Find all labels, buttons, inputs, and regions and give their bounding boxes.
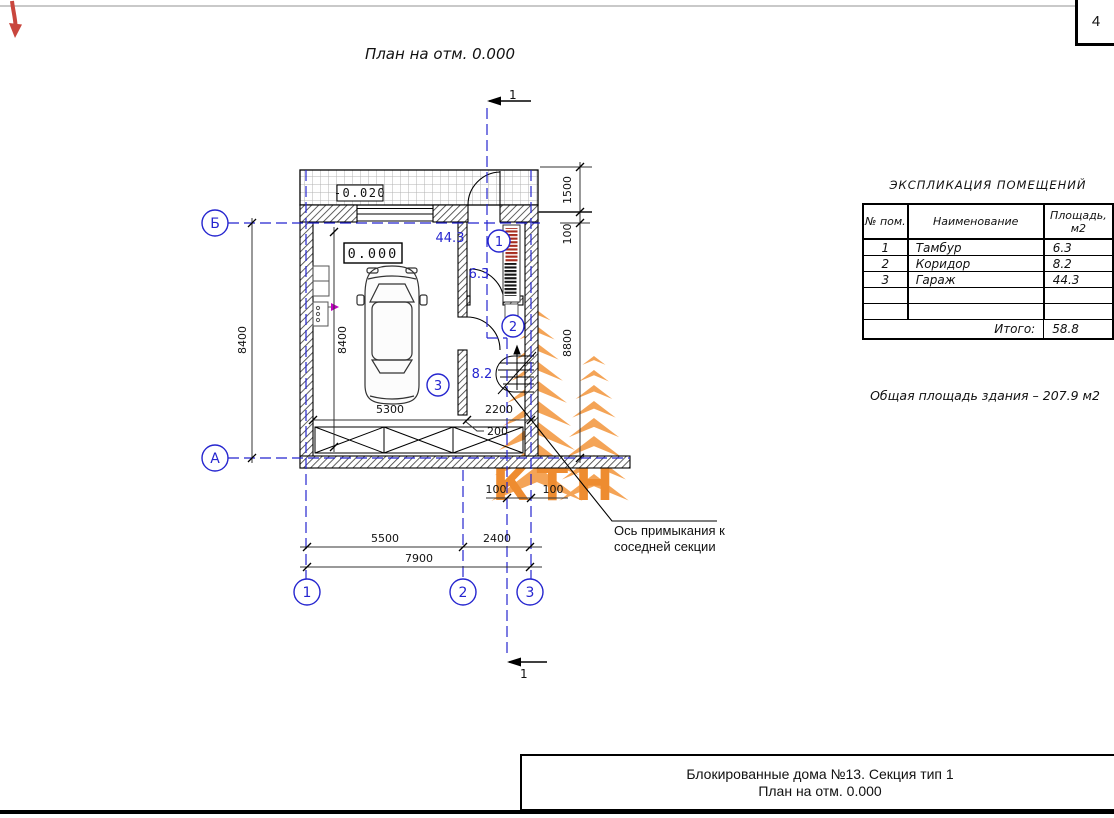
section-mark-bottom: 1	[507, 658, 547, 682]
section-label-top: 1	[509, 88, 517, 102]
explication-title: ЭКСПЛИКАЦИЯ ПОМЕЩЕНИЙ	[862, 178, 1114, 192]
dim-2200: 2200	[485, 403, 513, 416]
terrace-elevation-label: -0.020	[334, 186, 386, 200]
dim-100-right: 100	[543, 483, 564, 496]
room-tag-2: 2	[509, 320, 517, 335]
window	[357, 209, 433, 222]
dim-left-8400: 8400	[236, 326, 249, 354]
dim-right-100: 100	[561, 224, 574, 245]
table-row	[863, 288, 1113, 304]
table-total-row: Итого: 58.8	[863, 320, 1113, 340]
title-block-line2: План на отм. 0.000	[522, 783, 1114, 800]
room-tag-1: 1	[495, 235, 503, 250]
dim-inner-8400: 8400	[336, 326, 349, 354]
section-mark-top: 1	[487, 88, 531, 106]
dim-5500: 5500	[371, 532, 399, 545]
title-block-line1: Блокированные дома №13. Секция тип 1	[522, 766, 1114, 783]
table-row: 1 Тамбур 6.3	[863, 239, 1113, 256]
dim-200: 200	[487, 425, 508, 438]
dim-2400: 2400	[483, 532, 511, 545]
col-header-area-line1: Площадь,	[1045, 209, 1112, 222]
leader-note-line2: соседней секции	[614, 539, 716, 554]
leader-note-line1: Ось примыкания к	[614, 523, 725, 538]
page-bottom-rule	[0, 810, 1114, 814]
col-header-area-line2: м2	[1045, 222, 1112, 235]
table-row: 3 Гараж 44.3	[863, 272, 1113, 288]
table-row	[863, 304, 1113, 320]
dim-100-left: 100	[486, 483, 507, 496]
wall-cabinet	[313, 266, 331, 326]
dim-5300: 5300	[376, 403, 404, 416]
axis-label-a: А	[210, 451, 220, 467]
total-value: 58.8	[1044, 320, 1113, 340]
col-header-name: Наименование	[908, 204, 1044, 239]
explication-table: № пом. Наименование Площадь, м2 1 Тамбур…	[862, 203, 1114, 340]
terrace: -0.020	[300, 170, 538, 205]
corridor-area-label: 8.2	[472, 367, 493, 382]
car-top-view-icon	[357, 266, 427, 404]
table-row: 2 Коридор 8.2	[863, 256, 1113, 272]
dim-7900: 7900	[405, 552, 433, 565]
total-area-note: Общая площадь здания – 207.9 м2	[856, 388, 1114, 403]
axis-label-2: 2	[459, 585, 468, 601]
section-label-bottom: 1	[520, 667, 528, 681]
garage-area-label: 44.3	[436, 231, 465, 246]
garage-door-leaf	[467, 317, 500, 350]
dim-right-1500: 1500	[561, 176, 574, 204]
room-tag-3: 3	[434, 379, 442, 394]
axis-label-3: 3	[526, 585, 535, 601]
axis-label-1: 1	[303, 585, 312, 601]
axis-label-b: Б	[210, 216, 220, 232]
floor-plan-drawing: КТН -0.020	[0, 0, 1114, 818]
equipment-marker-icon	[331, 303, 339, 311]
floor-elevation-label: 0.000	[348, 246, 399, 262]
total-label: Итого:	[863, 320, 1044, 340]
drawing-sheet: 4 План на отм. 0.000	[0, 0, 1114, 818]
title-block: Блокированные дома №13. Секция тип 1 Пла…	[520, 754, 1114, 811]
tambour-area-label: 6.3	[469, 267, 490, 282]
floor-elevation: 0.000	[344, 243, 402, 263]
col-header-area: Площадь, м2	[1044, 204, 1113, 239]
dim-right-8800: 8800	[561, 329, 574, 357]
col-header-num: № пом.	[863, 204, 908, 239]
